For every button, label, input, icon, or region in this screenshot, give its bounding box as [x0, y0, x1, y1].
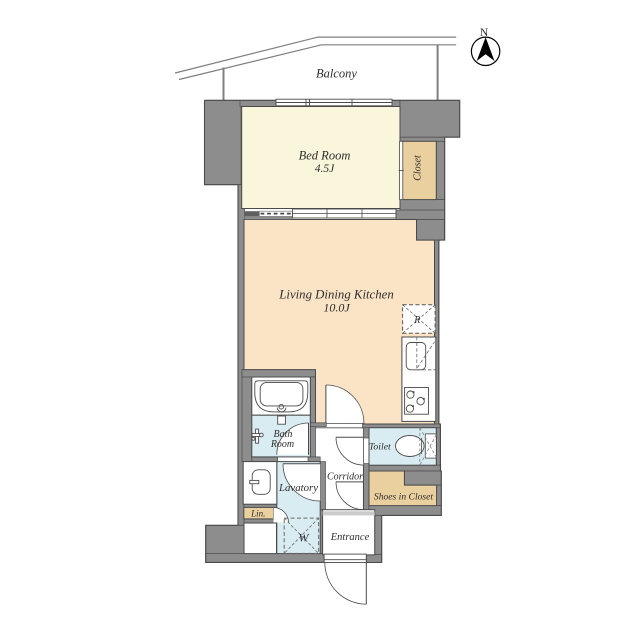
svg-text:Room: Room — [270, 439, 294, 450]
svg-text:Bed Room: Bed Room — [299, 149, 351, 163]
svg-text:Closet: Closet — [413, 155, 424, 181]
svg-text:W: W — [299, 530, 310, 544]
svg-text:10.0J: 10.0J — [323, 301, 350, 315]
svg-text:Shoes in Closet: Shoes in Closet — [374, 492, 433, 503]
svg-text:N: N — [480, 27, 489, 39]
svg-text:R: R — [413, 315, 420, 326]
svg-text:4.5J: 4.5J — [315, 163, 335, 175]
svg-text:Toilet: Toilet — [369, 442, 391, 453]
svg-text:Lavatory: Lavatory — [278, 482, 318, 494]
svg-text:Balcony: Balcony — [316, 67, 357, 81]
svg-text:Living Dining Kitchen: Living Dining Kitchen — [278, 288, 393, 302]
svg-text:Lin.: Lin. — [250, 509, 265, 519]
svg-text:Corridor: Corridor — [327, 471, 363, 482]
svg-text:Entrance: Entrance — [330, 532, 370, 543]
